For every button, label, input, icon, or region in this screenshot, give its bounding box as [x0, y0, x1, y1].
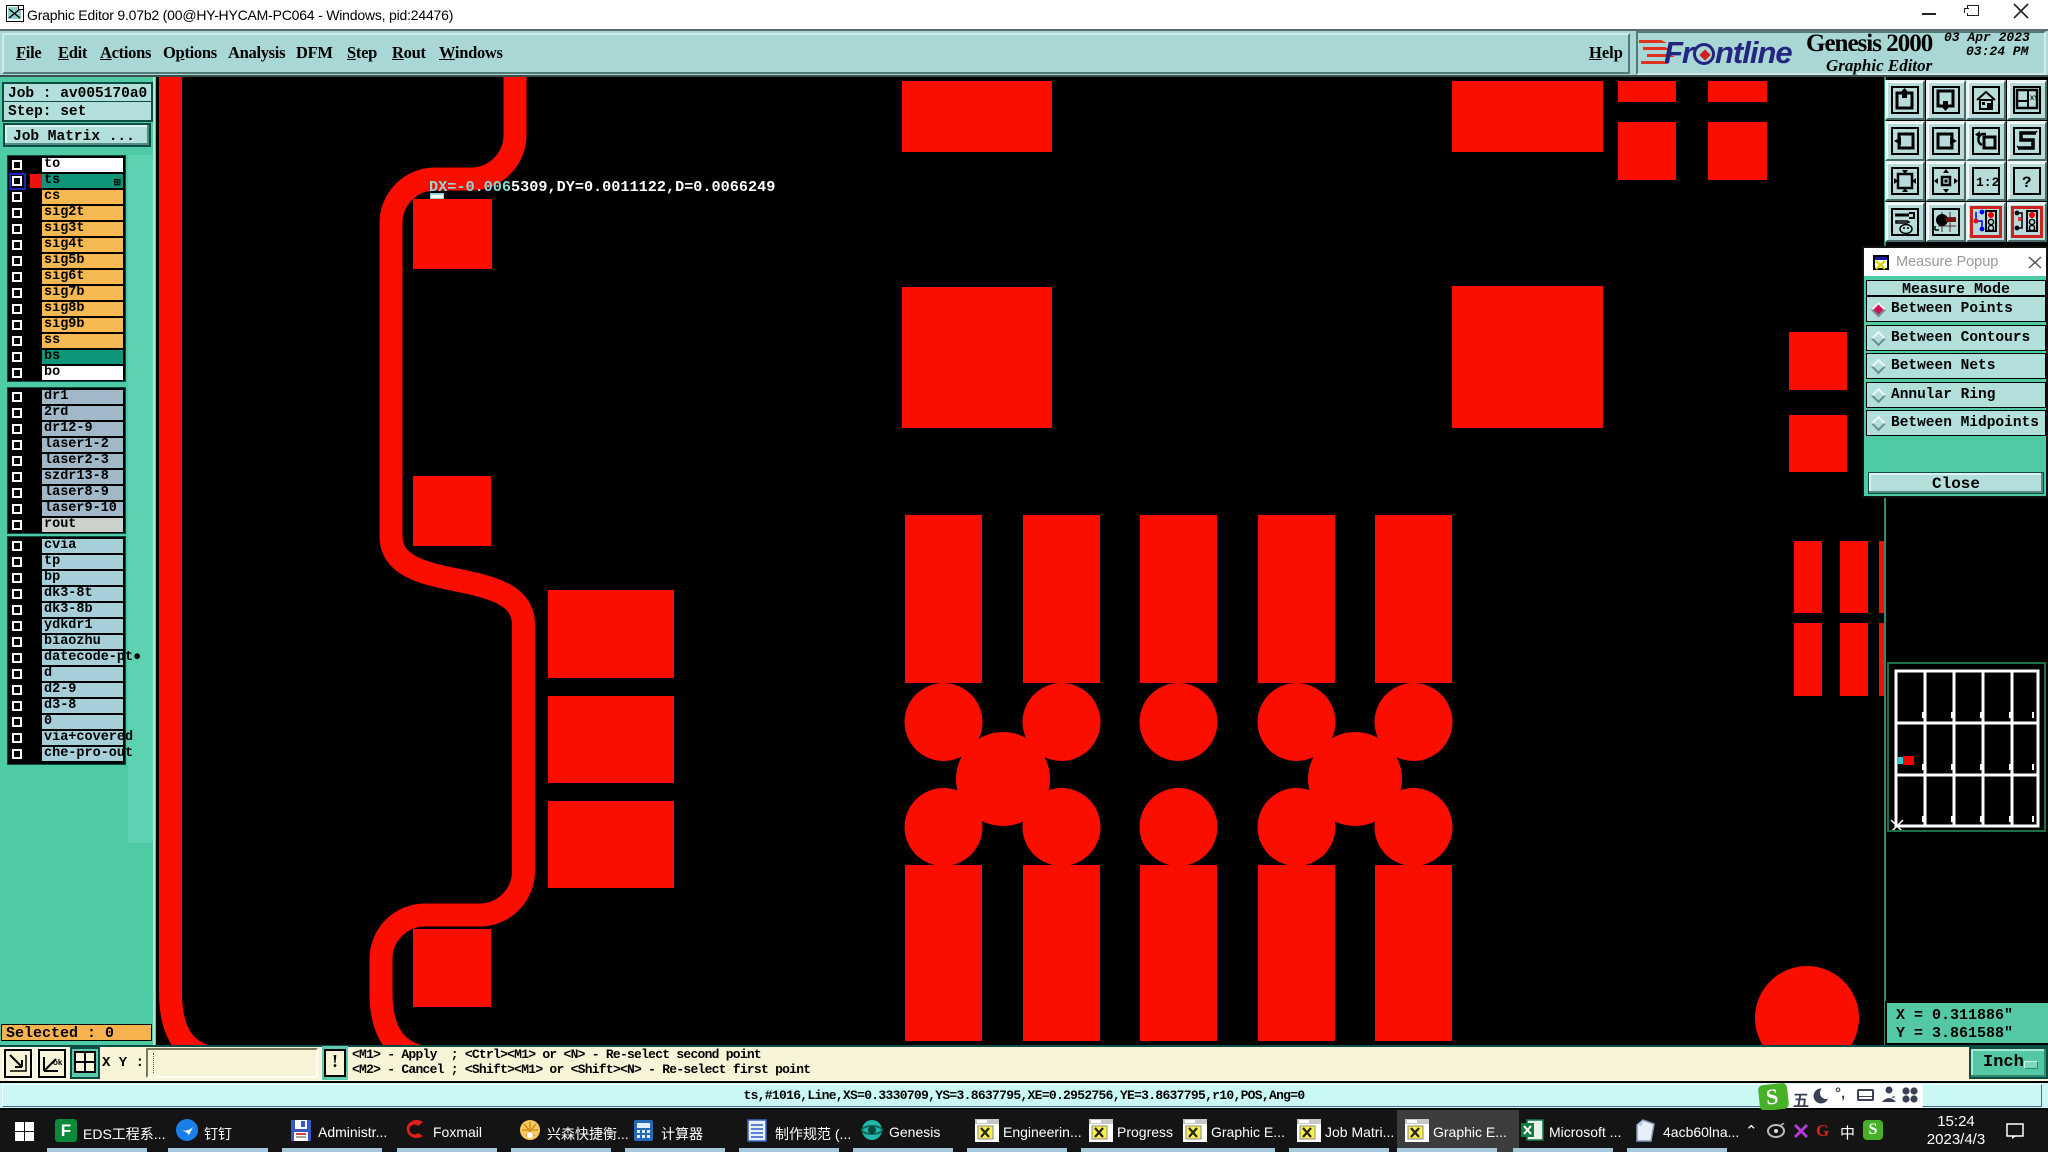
- svg-text:DX=-0.0065309,DY=0.0011122,D=0: DX=-0.0065309,DY=0.0011122,D=0.0066249: [429, 178, 775, 196]
- svg-text:ok: ok: [53, 1058, 63, 1067]
- svg-text:XY: XY: [2030, 96, 2038, 102]
- svg-text:1:2: 1:2: [1976, 175, 1998, 190]
- svg-text:?: ?: [2022, 174, 2032, 192]
